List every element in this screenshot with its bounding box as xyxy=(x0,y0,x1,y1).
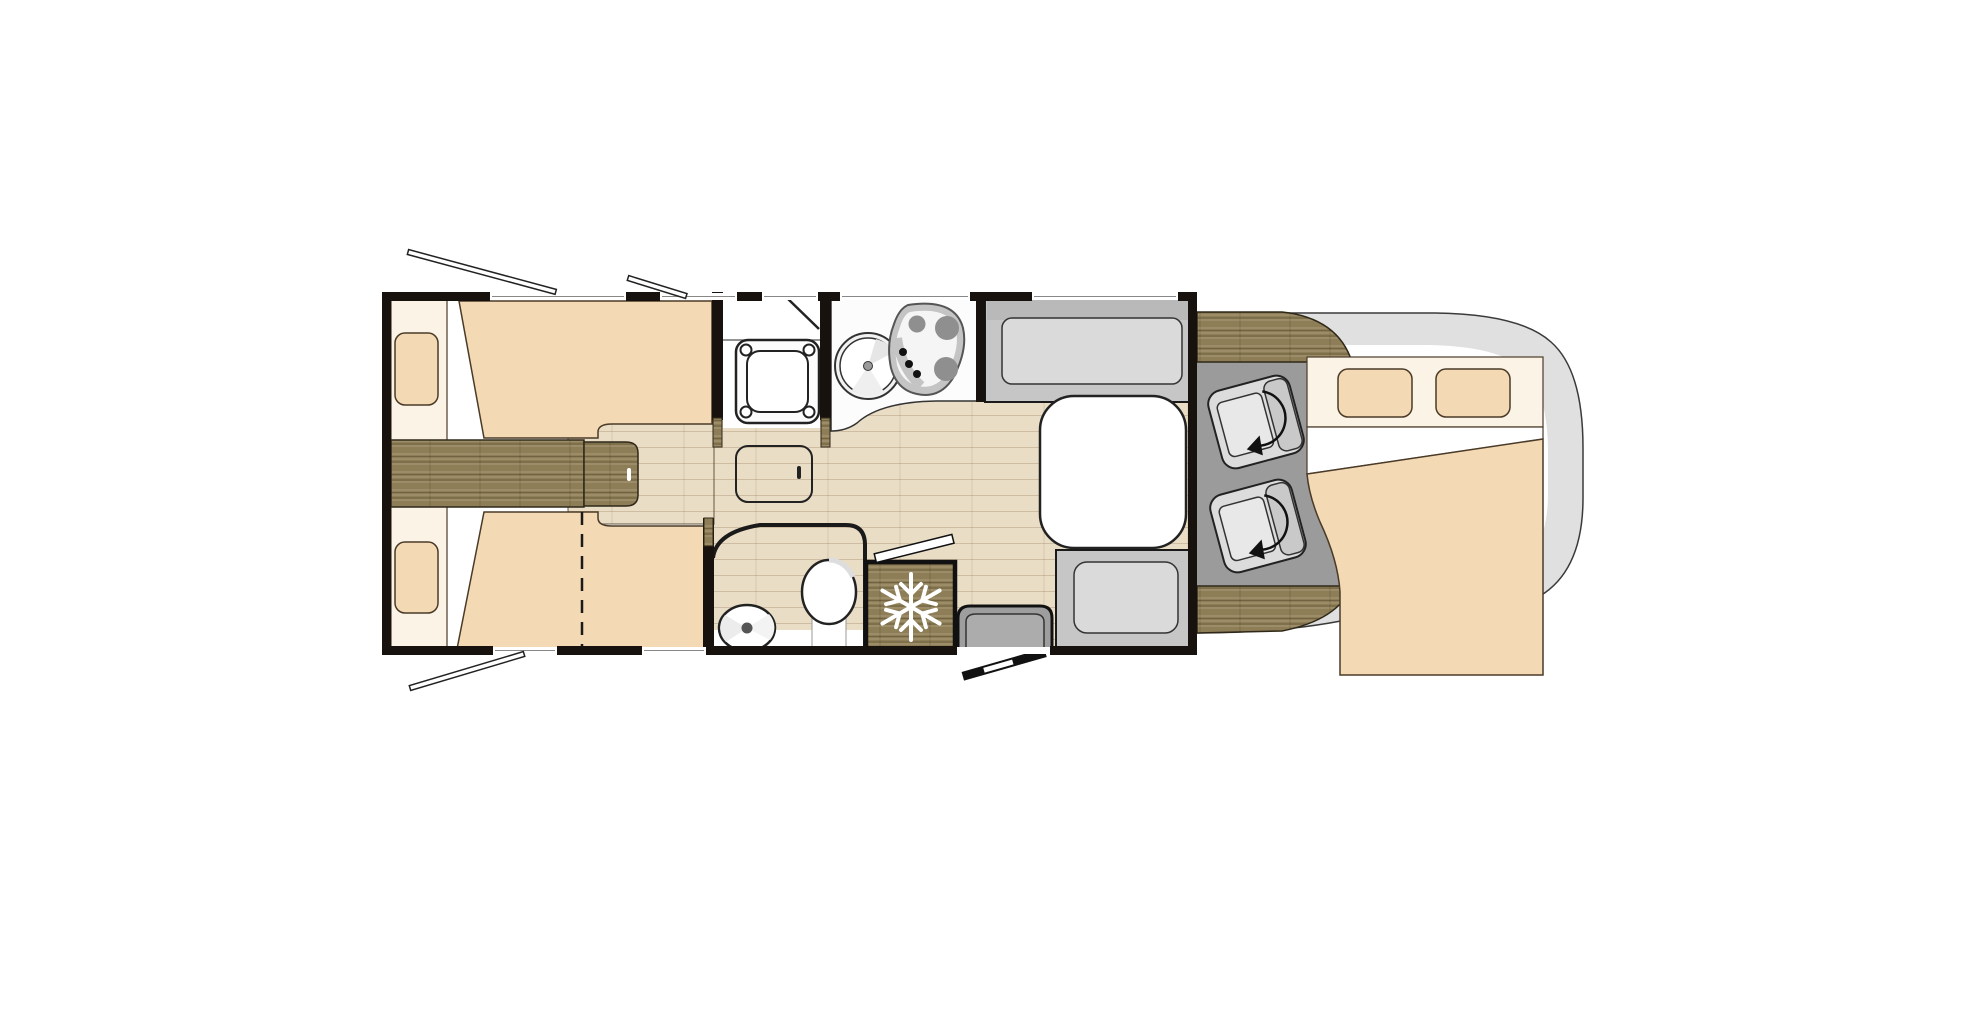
sink-drain xyxy=(864,362,873,371)
window-top-shower xyxy=(762,293,818,300)
cab-bulkhead-wall xyxy=(1188,292,1197,655)
shower-room xyxy=(723,296,820,428)
overcab-pillow-right xyxy=(1436,369,1510,417)
overcab-blanket xyxy=(1307,439,1543,675)
bench-seat-top xyxy=(985,298,1195,402)
single-bed-bottom xyxy=(457,512,712,649)
cab-wood-trim-bottom xyxy=(1197,586,1352,633)
floorplan-page xyxy=(0,0,1980,1029)
rear-wall xyxy=(382,292,391,655)
bench-seat-bottom xyxy=(1056,550,1193,651)
window-top-bedroom xyxy=(490,293,626,300)
entry xyxy=(958,606,1052,681)
entry-step-inner xyxy=(966,614,1044,651)
kitchen-bench-divider xyxy=(976,292,985,402)
overcab-pillow-left xyxy=(1338,369,1412,417)
bathroom-door-handle xyxy=(797,466,801,479)
window-top-kitchen xyxy=(840,293,970,300)
window-bottom-mid xyxy=(642,647,706,654)
open-window-flap-top-left xyxy=(407,250,556,295)
open-window-flap-bottom-left xyxy=(409,652,524,691)
single-bed-top xyxy=(459,301,712,438)
floorplan-svg xyxy=(0,0,1980,1029)
door-handle xyxy=(627,468,631,481)
window-top-dinette xyxy=(1032,293,1178,300)
dinette-table xyxy=(1040,396,1186,548)
center-walkway xyxy=(391,440,584,507)
sink-drain-dot xyxy=(742,623,753,634)
entry-door-gap xyxy=(957,647,1050,654)
pillow-top xyxy=(395,333,438,405)
pillow-bottom xyxy=(395,542,438,613)
overcab-bed xyxy=(1307,357,1543,675)
window-bottom-bedroom xyxy=(493,647,557,654)
shower-tray-inner xyxy=(747,351,808,412)
